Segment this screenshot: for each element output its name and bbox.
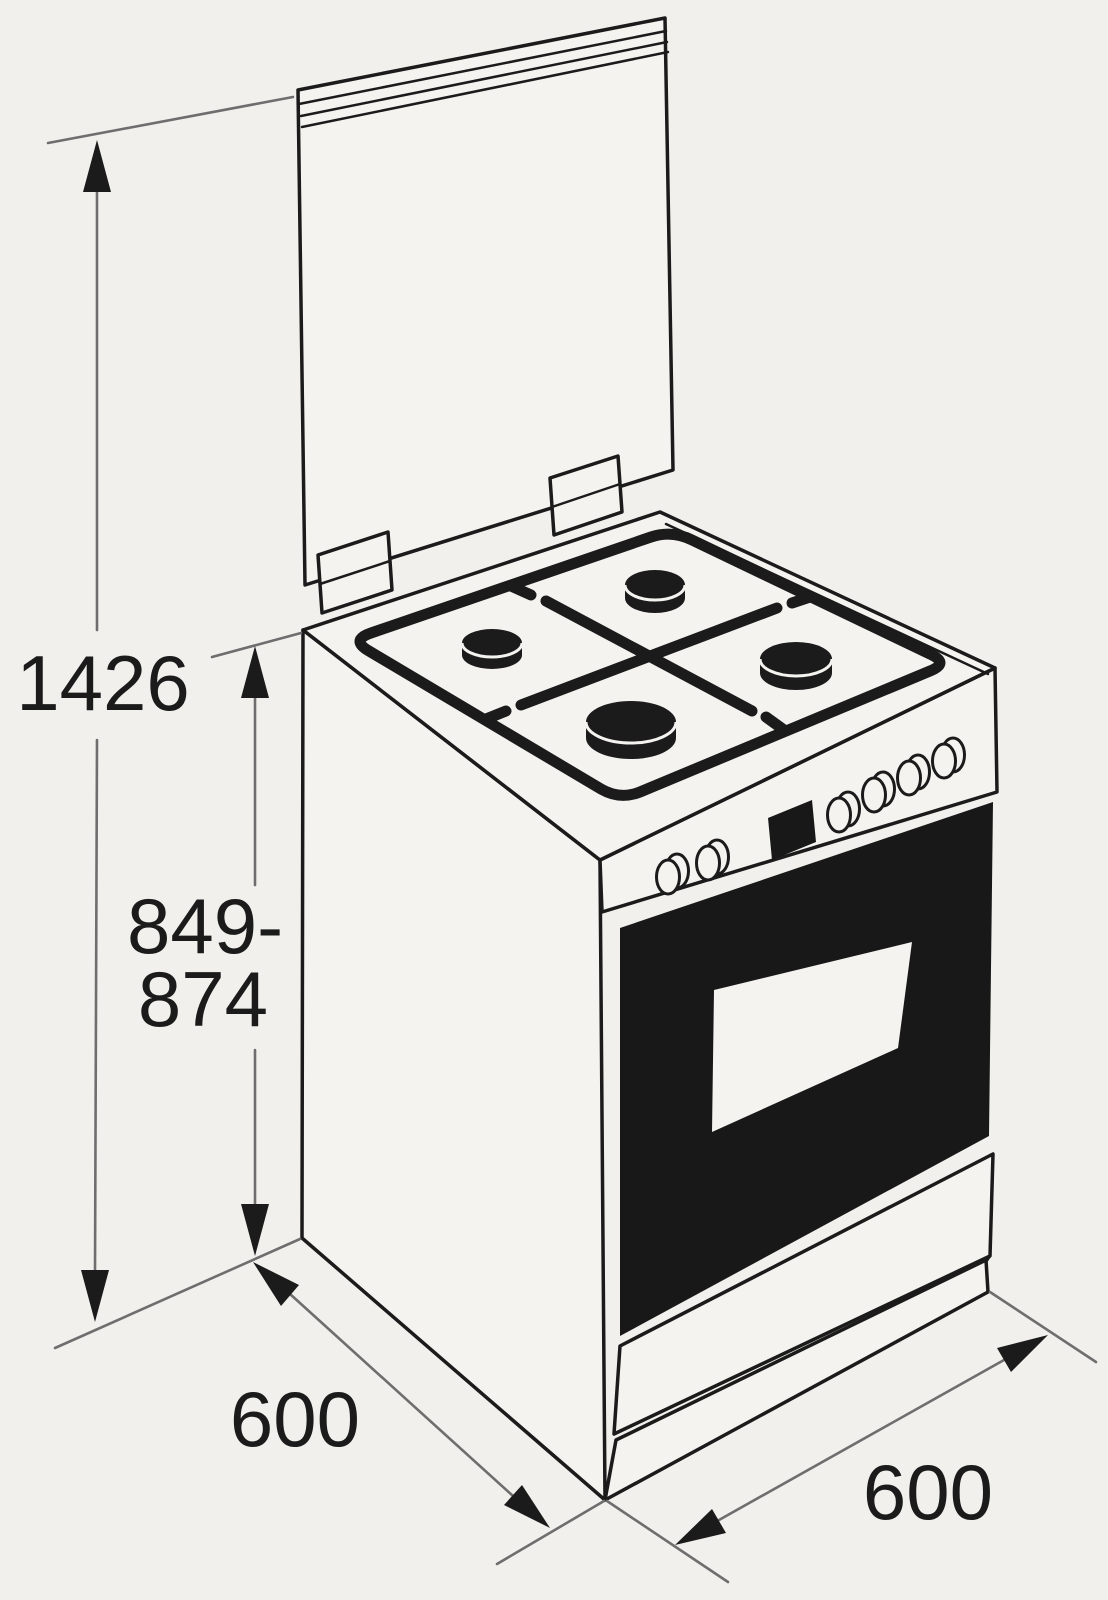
burner-back xyxy=(625,570,685,613)
arrowhead-upper-left xyxy=(253,1262,299,1306)
dim-label-depth: 600 xyxy=(230,1375,360,1463)
burner-right xyxy=(760,642,832,690)
dim-label-width: 600 xyxy=(863,1448,993,1536)
arrowhead-up xyxy=(241,646,269,698)
extension-line-lid-top xyxy=(48,97,293,143)
arrowhead-upper-right xyxy=(997,1335,1048,1372)
dimension-body-height: 849- 874 xyxy=(127,646,283,1256)
burner-front xyxy=(586,701,676,759)
cooker-dimension-diagram: 1426 849- 874 600 600 xyxy=(0,0,1108,1600)
dimension-total-height: 1426 xyxy=(16,140,190,1322)
arrowhead-up xyxy=(83,140,111,192)
extension-line-front-corner-left xyxy=(497,1501,604,1564)
arrowhead-down xyxy=(81,1270,109,1322)
burner-left xyxy=(462,629,522,669)
dimension-line-total-height-lower xyxy=(95,740,97,1272)
dim-label-total-height: 1426 xyxy=(16,639,190,727)
arrowhead-down xyxy=(241,1204,269,1256)
dim-label-body-height-line2: 874 xyxy=(138,955,268,1043)
diagram-page: 1426 849- 874 600 600 xyxy=(0,0,1108,1600)
arrowhead-lower-right xyxy=(504,1485,550,1528)
arrowhead-lower-left xyxy=(675,1509,726,1545)
